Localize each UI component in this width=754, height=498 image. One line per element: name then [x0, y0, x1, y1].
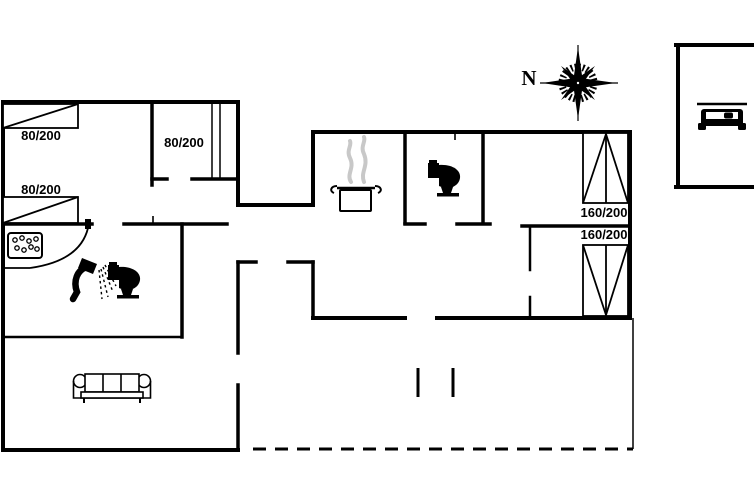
bed-size-label: 80/200: [15, 129, 67, 142]
cooking-pot-icon: [331, 137, 381, 211]
wardrobe-icon: [212, 104, 220, 179]
single-bed-1: [3, 104, 78, 128]
single-bed-2: [3, 197, 78, 223]
double-bed-2: [583, 245, 628, 316]
steam: [349, 137, 366, 182]
floorplan-drawing: [0, 0, 754, 498]
garage: [676, 45, 754, 187]
compass-rose-icon: [540, 45, 618, 121]
interior-walls-thin: [3, 228, 530, 337]
bed-size-label: 80/200: [158, 136, 210, 149]
whirlpool-icon: [8, 233, 42, 258]
bed-size-label: 80/200: [15, 183, 67, 196]
toilet-icon: [428, 160, 460, 197]
sofa-icon: [74, 374, 151, 403]
bed-size-label: 160/200: [577, 228, 631, 241]
bathroom-door-arc: [3, 219, 91, 268]
terrace: [253, 318, 633, 449]
double-bed-1: [583, 133, 628, 203]
car-icon: [697, 104, 747, 130]
bed-size-label: 160/200: [577, 206, 631, 219]
floorplan-canvas: 80/200 80/200 80/200 160/200 160/200 N: [0, 0, 754, 498]
door-post: [85, 219, 91, 229]
compass-north-label: N: [517, 68, 541, 89]
